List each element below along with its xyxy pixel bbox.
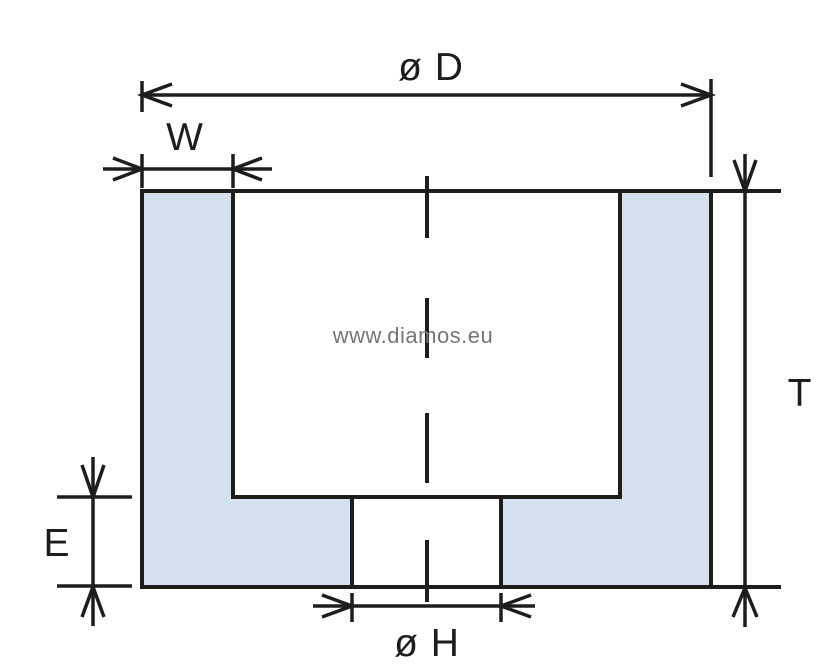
dimension-t [733, 154, 757, 627]
wheel-right-section [501, 191, 711, 587]
watermark-text: www.diamos.eu [332, 323, 494, 348]
cup-wheel-cross-section-svg: ø D W T E ø H www.diamos.eu [0, 0, 827, 670]
dimension-h [313, 593, 535, 622]
diagram-canvas: ø D W T E ø H www.diamos.eu [0, 0, 827, 670]
label-outer-diameter: ø D [398, 46, 464, 89]
wheel-left-section [142, 191, 352, 587]
label-total-height: T [788, 372, 813, 415]
label-base-thickness: E [43, 522, 70, 565]
label-bore-diameter: ø H [394, 622, 460, 665]
wheel-body [142, 191, 779, 587]
dimension-d [142, 79, 711, 177]
label-rim-width: W [166, 116, 204, 159]
dimension-w [103, 154, 272, 188]
